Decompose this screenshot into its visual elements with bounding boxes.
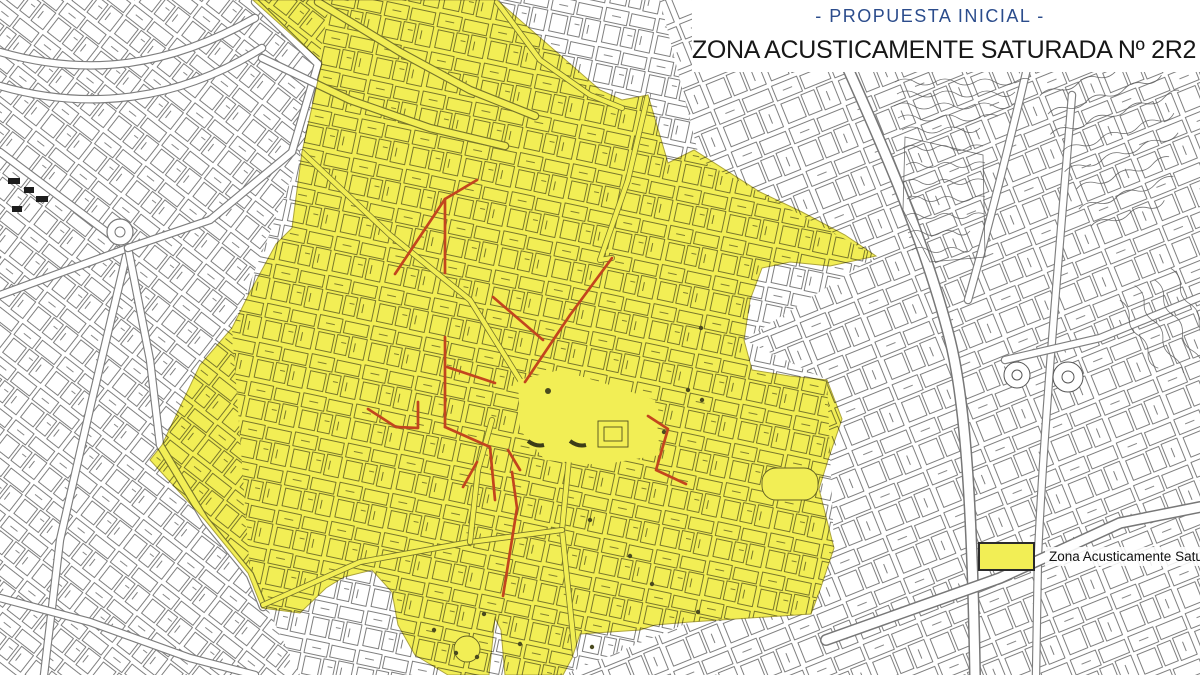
page-title: ZONA ACUSTICAMENTE SATURADA Nº 2R2 [688,36,1200,65]
legend-swatch-saturated-zone [978,542,1035,571]
proposal-label: - PROPUESTA INICIAL - [700,6,1160,27]
map-screenshot: - PROPUESTA INICIAL - ZONA ACUSTICAMENTE… [0,0,1200,675]
legend-label: Zona Acusticamente Saturada [1045,547,1200,566]
legend: Zona Acusticamente Saturada [978,542,1200,571]
map-canvas [0,0,1200,675]
